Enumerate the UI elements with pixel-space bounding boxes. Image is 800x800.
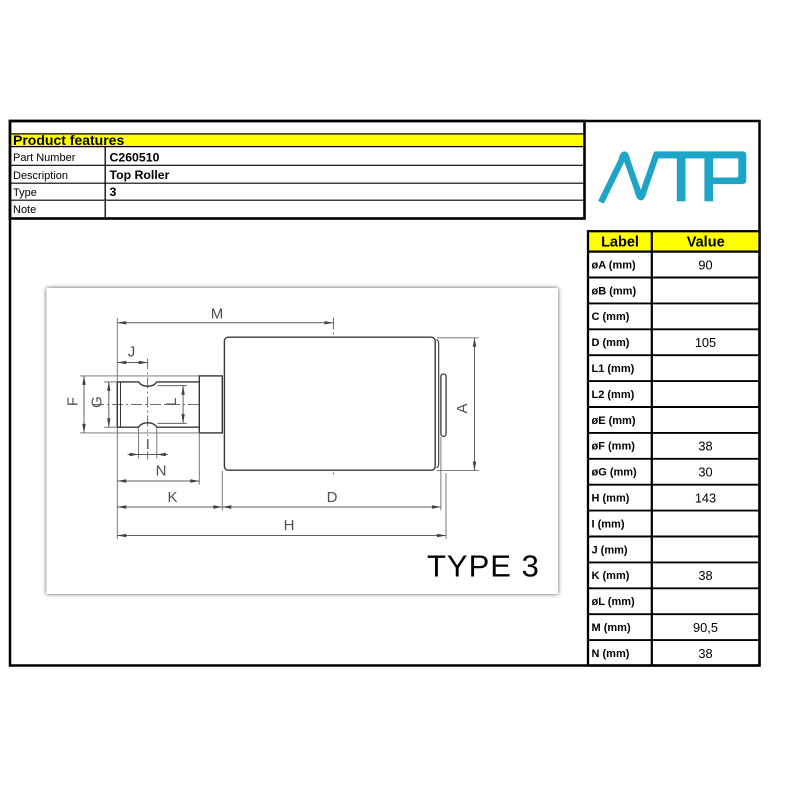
svg-text:3: 3 <box>110 185 117 199</box>
svg-text:I (mm): I (mm) <box>592 518 625 530</box>
svg-text:Top Roller: Top Roller <box>110 168 170 182</box>
svg-text:90: 90 <box>698 257 712 272</box>
svg-text:J: J <box>128 344 136 361</box>
svg-text:øB (mm): øB (mm) <box>592 285 637 297</box>
svg-text:D (mm): D (mm) <box>592 337 630 349</box>
svg-text:30: 30 <box>698 465 712 480</box>
svg-text:øE (mm): øE (mm) <box>592 415 636 427</box>
svg-text:L1 (mm): L1 (mm) <box>592 363 635 375</box>
svg-text:38: 38 <box>698 439 712 454</box>
svg-text:L2 (mm): L2 (mm) <box>592 389 635 401</box>
svg-text:øL (mm): øL (mm) <box>592 596 636 608</box>
svg-text:N: N <box>156 463 167 480</box>
svg-text:C (mm): C (mm) <box>592 311 630 323</box>
svg-text:Type: Type <box>13 187 37 199</box>
svg-text:øG (mm): øG (mm) <box>592 467 638 479</box>
svg-text:38: 38 <box>698 568 712 583</box>
svg-text:K (mm): K (mm) <box>592 570 630 582</box>
svg-text:143: 143 <box>695 491 716 506</box>
svg-text:H (mm): H (mm) <box>592 493 630 505</box>
svg-text:Description: Description <box>13 170 68 182</box>
svg-text:Product features: Product features <box>13 132 124 148</box>
svg-text:F: F <box>65 397 82 406</box>
svg-text:øF (mm): øF (mm) <box>592 441 636 453</box>
svg-text:38: 38 <box>698 646 712 661</box>
svg-text:N (mm): N (mm) <box>592 648 630 660</box>
svg-text:C260510: C260510 <box>110 150 160 164</box>
svg-text:I: I <box>146 436 150 453</box>
svg-text:Value: Value <box>687 235 725 251</box>
svg-text:M: M <box>211 305 224 322</box>
svg-text:K: K <box>167 489 177 506</box>
svg-text:A: A <box>454 403 471 413</box>
svg-text:H: H <box>284 517 295 534</box>
svg-text:L: L <box>163 398 180 406</box>
svg-text:Label: Label <box>601 235 639 251</box>
svg-text:Part Number: Part Number <box>13 152 76 164</box>
svg-text:G: G <box>89 396 106 408</box>
svg-text:105: 105 <box>695 335 716 350</box>
svg-text:90,5: 90,5 <box>693 620 718 635</box>
svg-text:TYPE 3: TYPE 3 <box>427 549 540 584</box>
svg-text:øA (mm): øA (mm) <box>592 259 637 271</box>
svg-text:D: D <box>327 489 338 506</box>
svg-text:J (mm): J (mm) <box>592 544 628 556</box>
svg-text:M (mm): M (mm) <box>592 622 631 634</box>
svg-text:Note: Note <box>13 204 36 216</box>
